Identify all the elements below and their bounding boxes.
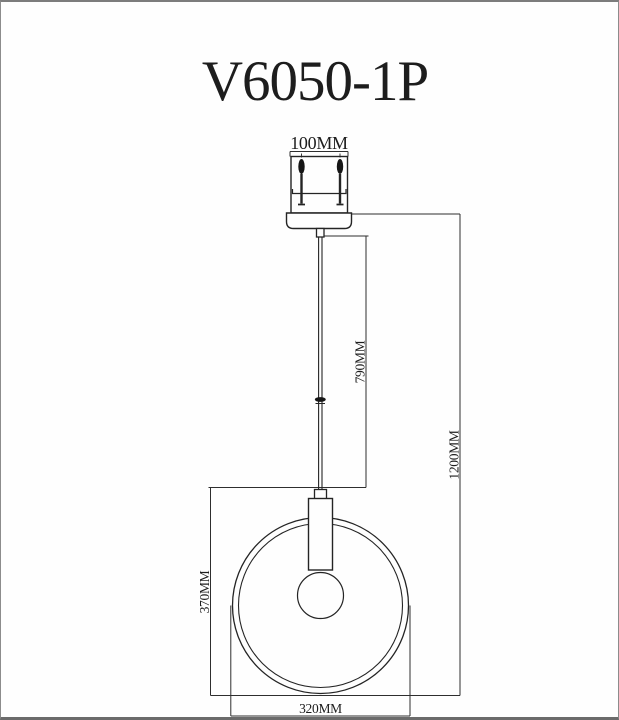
product-code-title: V6050-1P — [202, 50, 428, 113]
canopy-group — [287, 154, 352, 238]
canopy-cover — [287, 213, 352, 229]
dim-line-shade-diameter — [231, 606, 410, 717]
light-bulb — [298, 573, 344, 619]
socket-connector — [315, 490, 327, 500]
cord-adjuster — [315, 397, 326, 402]
dim-overall-height-label: 1200MM — [447, 430, 462, 480]
mounting-screw-left — [298, 159, 304, 174]
canopy-stem — [317, 229, 325, 238]
dim-shade-height-label: 370MM — [197, 570, 212, 613]
dim-cord-length-label: 790MM — [353, 340, 368, 383]
shade-group — [233, 490, 409, 694]
technical-drawing: V6050-1P — [0, 0, 619, 720]
suspension-cord — [319, 237, 322, 490]
cord-group — [315, 237, 326, 490]
dimension-lines-group — [209, 152, 461, 717]
dim-shade-diameter-label: 320MM — [299, 701, 342, 716]
dim-canopy-width-label: 100MM — [290, 133, 348, 153]
mounting-screw-right — [337, 159, 343, 174]
lamp-socket — [309, 499, 333, 571]
page: V6050-1P — [0, 0, 619, 720]
